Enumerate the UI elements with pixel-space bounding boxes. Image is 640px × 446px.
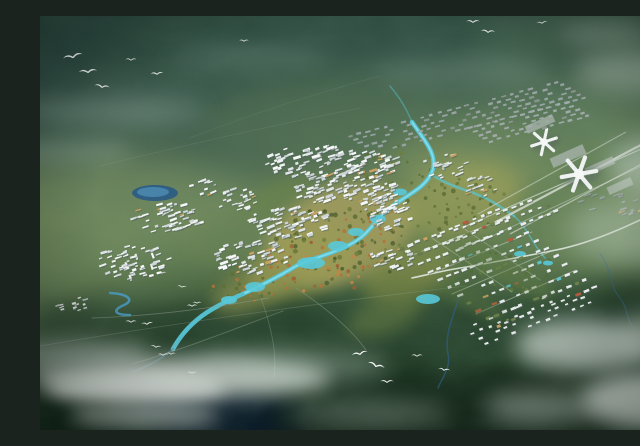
masterplan-aerial-rendering xyxy=(40,16,640,430)
vignette-overlay xyxy=(40,16,640,430)
scene-canvas xyxy=(40,16,640,430)
